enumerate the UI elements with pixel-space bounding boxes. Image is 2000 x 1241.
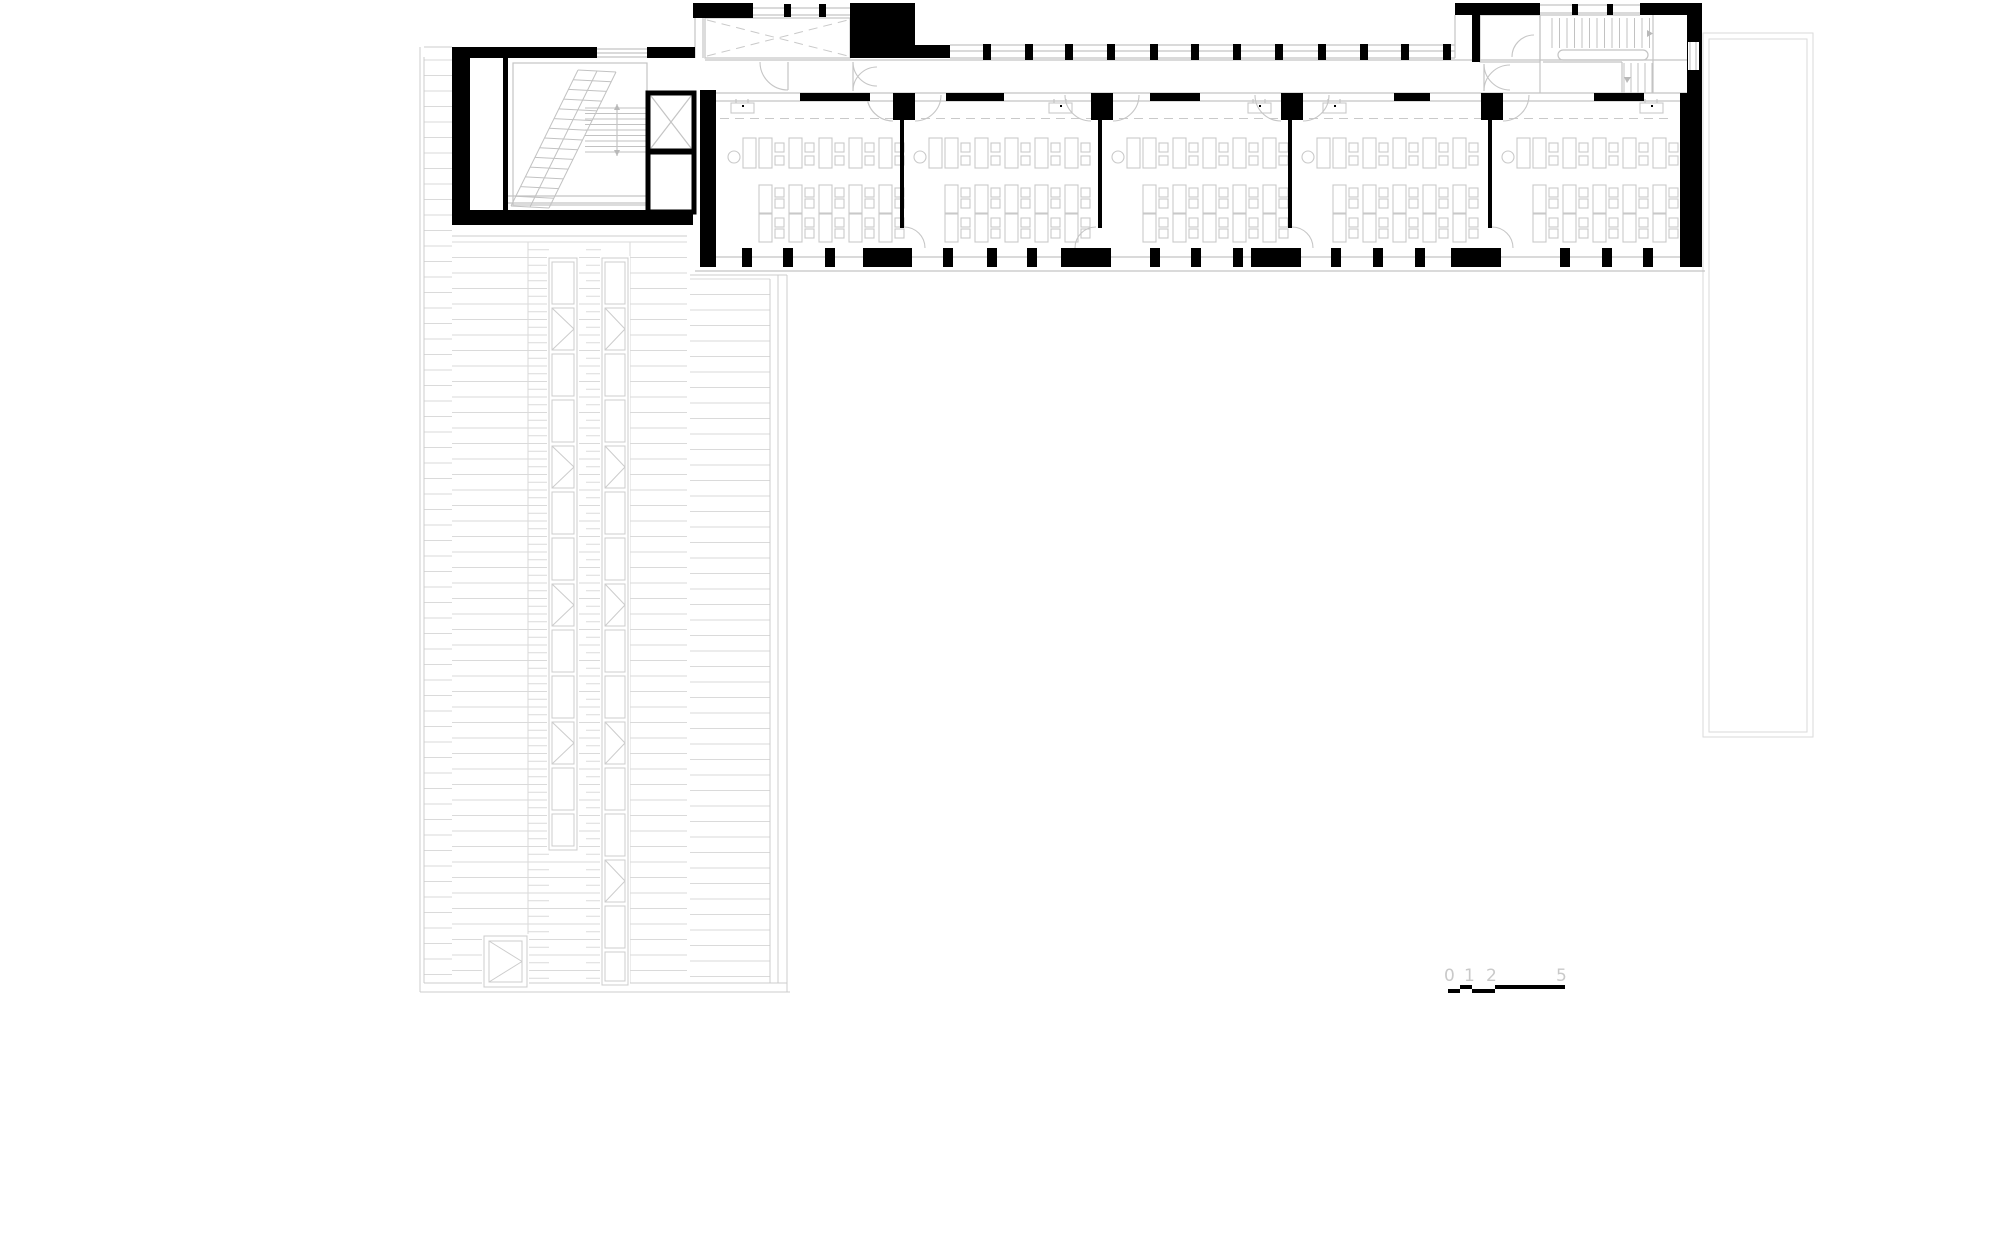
scale-label: 1 <box>1464 966 1475 986</box>
door-swings <box>904 227 925 248</box>
door-swings <box>867 95 893 121</box>
elevator-shaft <box>648 93 694 212</box>
roof-terrace <box>1703 33 1813 737</box>
roof-deck <box>420 47 790 992</box>
door-swings <box>1292 227 1313 248</box>
floor-plan-page: 0 1 2 5 <box>0 0 2000 1241</box>
floor-plan-drawing <box>0 0 2000 1241</box>
right-stairwell <box>1552 18 1653 93</box>
scale-bar-segments <box>1448 985 1565 993</box>
classrooms <box>720 95 1678 267</box>
door-swings <box>1512 35 1534 57</box>
door-swings <box>853 62 877 86</box>
door-swings <box>1503 95 1529 121</box>
door-swings <box>1492 227 1513 248</box>
door-swings <box>760 62 788 90</box>
left-stairwell <box>511 70 648 208</box>
door-swings <box>853 67 877 91</box>
scale-label: 5 <box>1556 966 1567 986</box>
scale-label: 2 <box>1486 966 1497 986</box>
scale-label: 0 <box>1444 966 1455 986</box>
